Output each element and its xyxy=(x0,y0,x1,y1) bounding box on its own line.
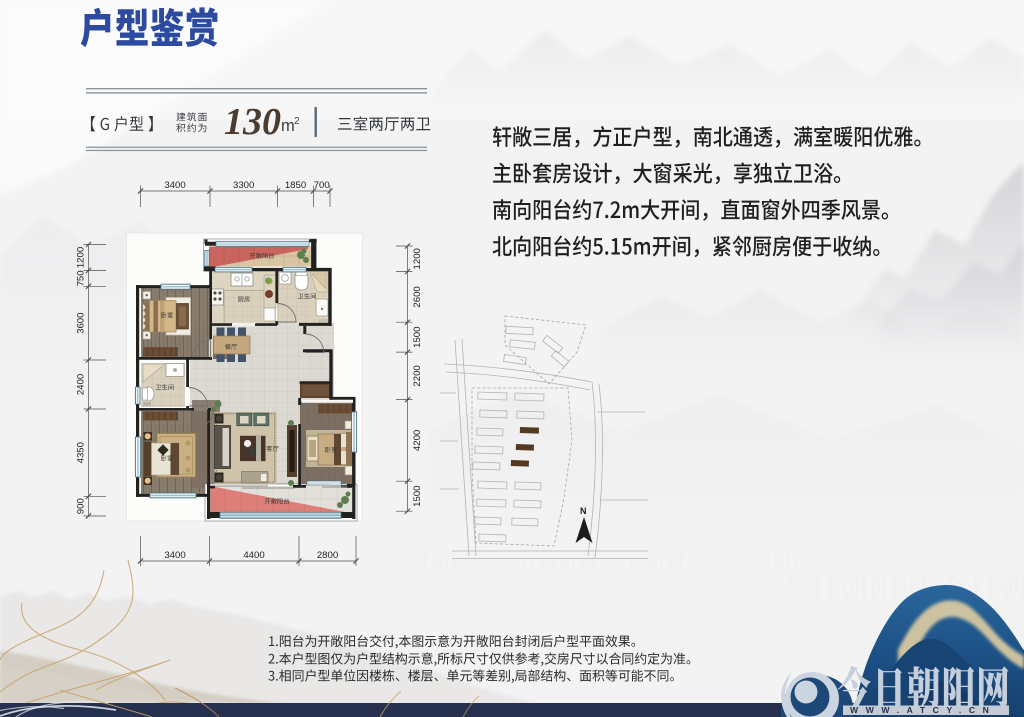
svg-text:2400: 2400 xyxy=(76,374,87,395)
svg-text:3600: 3600 xyxy=(76,313,87,334)
svg-text:2200: 2200 xyxy=(412,365,423,386)
svg-text:2: 2 xyxy=(294,116,300,127)
svg-text:1200: 1200 xyxy=(412,248,423,269)
svg-text:700: 700 xyxy=(314,180,330,191)
svg-text:3400: 3400 xyxy=(164,180,185,191)
svg-text:4400: 4400 xyxy=(243,550,264,561)
svg-text:2800: 2800 xyxy=(317,550,338,561)
svg-text:1500: 1500 xyxy=(412,327,423,348)
svg-text:750: 750 xyxy=(76,270,87,286)
svg-text:1850: 1850 xyxy=(285,180,306,191)
svg-text:2600: 2600 xyxy=(412,286,423,307)
svg-text:m: m xyxy=(281,117,295,135)
svg-text:1500: 1500 xyxy=(412,486,423,507)
svg-text:3400: 3400 xyxy=(164,550,185,561)
svg-text:130: 130 xyxy=(224,101,281,143)
svg-text:3300: 3300 xyxy=(233,180,254,191)
svg-text:N: N xyxy=(580,506,587,516)
svg-text:900: 900 xyxy=(76,498,87,514)
svg-text:4200: 4200 xyxy=(412,430,423,451)
svg-text:WWW.ATCY.CN: WWW.ATCY.CN xyxy=(850,705,996,715)
svg-text:4350: 4350 xyxy=(76,442,87,463)
svg-text:1200: 1200 xyxy=(76,247,87,268)
